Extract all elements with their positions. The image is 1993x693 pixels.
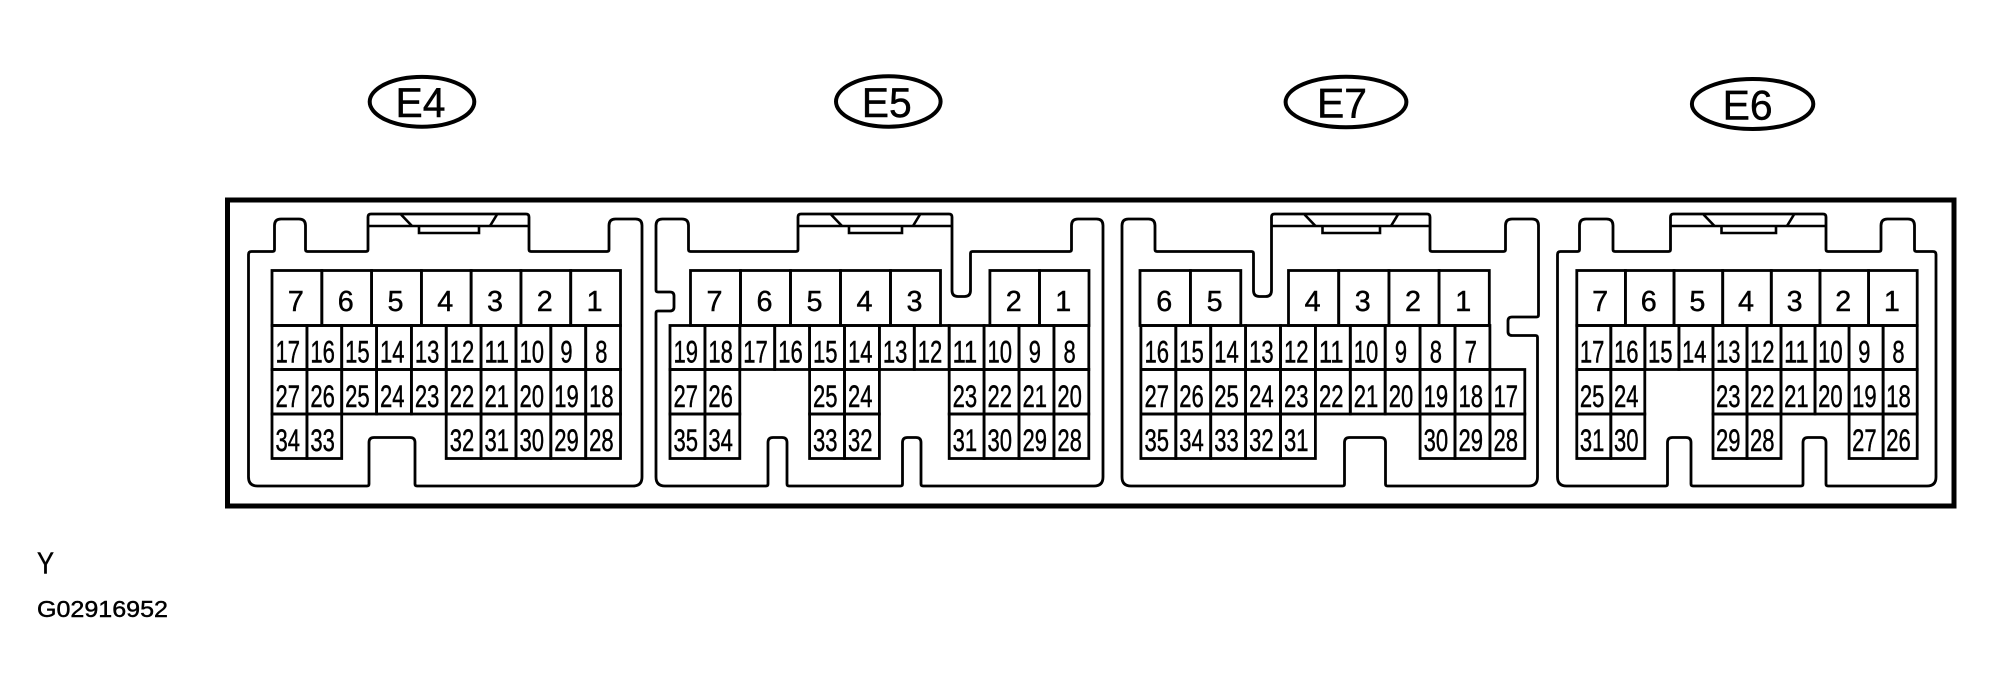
- svg-text:27: 27: [275, 378, 300, 414]
- svg-text:24: 24: [380, 378, 405, 414]
- svg-text:23: 23: [1284, 378, 1309, 414]
- svg-text:16: 16: [778, 334, 803, 370]
- svg-text:18: 18: [1459, 378, 1484, 414]
- svg-text:25: 25: [1214, 378, 1239, 414]
- svg-text:1: 1: [587, 286, 603, 318]
- svg-text:11: 11: [953, 334, 978, 370]
- svg-text:6: 6: [757, 286, 773, 318]
- svg-text:2: 2: [537, 286, 553, 318]
- svg-text:2: 2: [1835, 286, 1851, 318]
- svg-text:29: 29: [1459, 422, 1484, 458]
- svg-text:27: 27: [1144, 378, 1169, 414]
- svg-text:22: 22: [988, 378, 1013, 414]
- svg-text:13: 13: [883, 334, 908, 370]
- svg-text:E6: E6: [1723, 81, 1773, 128]
- svg-text:21: 21: [1023, 378, 1048, 414]
- svg-text:28: 28: [1057, 422, 1082, 458]
- svg-text:18: 18: [589, 378, 614, 414]
- svg-text:3: 3: [907, 286, 923, 318]
- svg-text:20: 20: [1057, 378, 1082, 414]
- svg-text:16: 16: [1144, 334, 1169, 370]
- svg-text:34: 34: [1179, 422, 1204, 458]
- svg-text:7: 7: [707, 286, 723, 318]
- svg-text:15: 15: [813, 334, 838, 370]
- svg-text:20: 20: [1818, 378, 1843, 414]
- svg-text:3: 3: [1787, 286, 1803, 318]
- svg-text:23: 23: [1716, 378, 1741, 414]
- svg-text:5: 5: [807, 286, 823, 318]
- svg-text:17: 17: [1493, 378, 1518, 414]
- svg-text:15: 15: [345, 334, 370, 370]
- svg-text:12: 12: [1284, 334, 1309, 370]
- svg-text:19: 19: [674, 334, 699, 370]
- svg-text:35: 35: [1144, 422, 1169, 458]
- svg-text:4: 4: [857, 286, 873, 318]
- svg-text:22: 22: [1319, 378, 1344, 414]
- svg-text:5: 5: [1207, 286, 1223, 318]
- svg-text:31: 31: [953, 422, 978, 458]
- svg-text:32: 32: [450, 422, 475, 458]
- svg-text:25: 25: [345, 378, 370, 414]
- svg-text:32: 32: [1249, 422, 1274, 458]
- svg-text:Y: Y: [37, 546, 54, 581]
- svg-text:E7: E7: [1317, 79, 1367, 126]
- svg-text:10: 10: [519, 334, 544, 370]
- svg-text:8: 8: [595, 334, 607, 370]
- svg-text:26: 26: [310, 378, 335, 414]
- svg-text:29: 29: [1716, 422, 1741, 458]
- svg-text:E4: E4: [396, 79, 446, 126]
- svg-text:28: 28: [589, 422, 614, 458]
- svg-text:24: 24: [1249, 378, 1274, 414]
- svg-text:35: 35: [674, 422, 699, 458]
- svg-text:10: 10: [988, 334, 1013, 370]
- svg-text:9: 9: [1029, 334, 1041, 370]
- svg-text:16: 16: [310, 334, 335, 370]
- svg-text:12: 12: [450, 334, 475, 370]
- svg-text:28: 28: [1750, 422, 1775, 458]
- svg-text:8: 8: [1064, 334, 1076, 370]
- svg-text:27: 27: [674, 378, 699, 414]
- svg-text:18: 18: [1886, 378, 1911, 414]
- svg-text:G02916952: G02916952: [37, 596, 168, 622]
- svg-text:4: 4: [1305, 286, 1321, 318]
- svg-text:23: 23: [415, 378, 440, 414]
- svg-text:33: 33: [1214, 422, 1239, 458]
- svg-text:9: 9: [1858, 334, 1870, 370]
- svg-text:8: 8: [1430, 334, 1442, 370]
- svg-text:7: 7: [1592, 286, 1608, 318]
- svg-text:3: 3: [1355, 286, 1371, 318]
- svg-text:11: 11: [1784, 334, 1809, 370]
- svg-text:29: 29: [1023, 422, 1048, 458]
- svg-text:28: 28: [1493, 422, 1518, 458]
- svg-text:5: 5: [388, 286, 404, 318]
- svg-text:1: 1: [1884, 286, 1900, 318]
- svg-text:21: 21: [1784, 378, 1809, 414]
- svg-text:23: 23: [953, 378, 978, 414]
- svg-text:30: 30: [988, 422, 1013, 458]
- svg-text:26: 26: [1179, 378, 1204, 414]
- svg-text:16: 16: [1614, 334, 1639, 370]
- svg-text:5: 5: [1689, 286, 1705, 318]
- svg-text:9: 9: [1395, 334, 1407, 370]
- svg-text:19: 19: [1852, 378, 1877, 414]
- svg-text:34: 34: [708, 422, 733, 458]
- svg-text:25: 25: [813, 378, 838, 414]
- svg-text:13: 13: [1716, 334, 1741, 370]
- svg-text:8: 8: [1892, 334, 1904, 370]
- svg-text:21: 21: [485, 378, 510, 414]
- svg-text:17: 17: [275, 334, 300, 370]
- svg-text:31: 31: [485, 422, 510, 458]
- svg-text:19: 19: [554, 378, 579, 414]
- svg-text:14: 14: [380, 334, 405, 370]
- svg-text:24: 24: [1614, 378, 1639, 414]
- svg-text:30: 30: [1614, 422, 1639, 458]
- svg-text:31: 31: [1284, 422, 1309, 458]
- svg-text:14: 14: [1214, 334, 1239, 370]
- svg-text:33: 33: [310, 422, 335, 458]
- svg-text:10: 10: [1818, 334, 1843, 370]
- svg-text:26: 26: [1886, 422, 1911, 458]
- svg-text:17: 17: [743, 334, 768, 370]
- svg-text:31: 31: [1580, 422, 1605, 458]
- svg-text:6: 6: [1641, 286, 1657, 318]
- svg-text:19: 19: [1424, 378, 1449, 414]
- svg-text:34: 34: [275, 422, 300, 458]
- svg-text:14: 14: [1682, 334, 1707, 370]
- svg-text:6: 6: [1156, 286, 1172, 318]
- svg-text:E5: E5: [862, 79, 912, 126]
- svg-text:11: 11: [485, 334, 510, 370]
- svg-text:24: 24: [848, 378, 873, 414]
- svg-text:21: 21: [1354, 378, 1379, 414]
- svg-text:10: 10: [1354, 334, 1379, 370]
- svg-text:22: 22: [450, 378, 475, 414]
- svg-text:1: 1: [1455, 286, 1471, 318]
- svg-text:12: 12: [918, 334, 943, 370]
- svg-text:30: 30: [519, 422, 544, 458]
- svg-text:4: 4: [437, 286, 453, 318]
- svg-text:7: 7: [288, 286, 304, 318]
- svg-text:14: 14: [848, 334, 873, 370]
- svg-text:9: 9: [560, 334, 572, 370]
- svg-text:25: 25: [1580, 378, 1605, 414]
- svg-text:1: 1: [1055, 286, 1071, 318]
- svg-text:30: 30: [1424, 422, 1449, 458]
- svg-text:15: 15: [1179, 334, 1204, 370]
- svg-text:2: 2: [1006, 286, 1022, 318]
- svg-text:11: 11: [1319, 334, 1344, 370]
- svg-text:4: 4: [1738, 286, 1754, 318]
- svg-text:27: 27: [1852, 422, 1877, 458]
- svg-text:20: 20: [519, 378, 544, 414]
- svg-text:12: 12: [1750, 334, 1775, 370]
- svg-text:17: 17: [1580, 334, 1605, 370]
- svg-text:6: 6: [338, 286, 354, 318]
- svg-text:18: 18: [708, 334, 733, 370]
- svg-text:22: 22: [1750, 378, 1775, 414]
- svg-text:33: 33: [813, 422, 838, 458]
- svg-text:32: 32: [848, 422, 873, 458]
- svg-text:29: 29: [554, 422, 579, 458]
- svg-text:15: 15: [1648, 334, 1673, 370]
- svg-text:26: 26: [708, 378, 733, 414]
- svg-text:7: 7: [1465, 334, 1477, 370]
- svg-text:2: 2: [1405, 286, 1421, 318]
- svg-text:3: 3: [487, 286, 503, 318]
- svg-text:13: 13: [415, 334, 440, 370]
- svg-text:20: 20: [1389, 378, 1414, 414]
- svg-text:13: 13: [1249, 334, 1274, 370]
